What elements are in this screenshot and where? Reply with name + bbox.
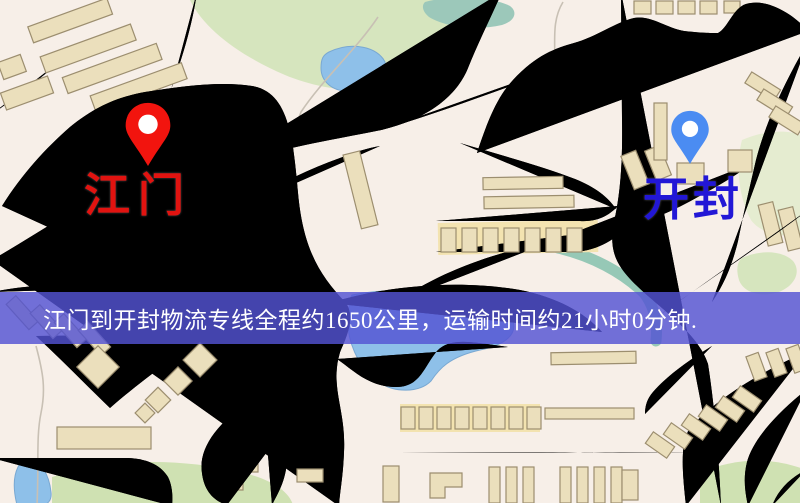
route-map-image: 江门 开封 江门到开封物流专线全程约1650公里，运输时间约21小时0分钟.	[0, 0, 800, 503]
map-canvas[interactable]	[0, 0, 800, 503]
pin-body	[671, 111, 708, 164]
pin-hole	[138, 115, 157, 134]
route-info-banner: 江门到开封物流专线全程约1650公里，运输时间约21小时0分钟.	[0, 292, 800, 344]
destination-pin-icon	[668, 108, 712, 166]
pin-hole	[682, 121, 698, 137]
destination-pin[interactable]	[668, 108, 712, 171]
origin-label: 江门	[84, 172, 192, 218]
origin-pin-icon	[121, 100, 175, 168]
origin-pin[interactable]	[121, 100, 175, 173]
destination-label: 开封	[643, 176, 743, 222]
pin-body	[126, 103, 171, 166]
route-info-text: 江门到开封物流专线全程约1650公里，运输时间约21小时0分钟.	[43, 301, 697, 335]
